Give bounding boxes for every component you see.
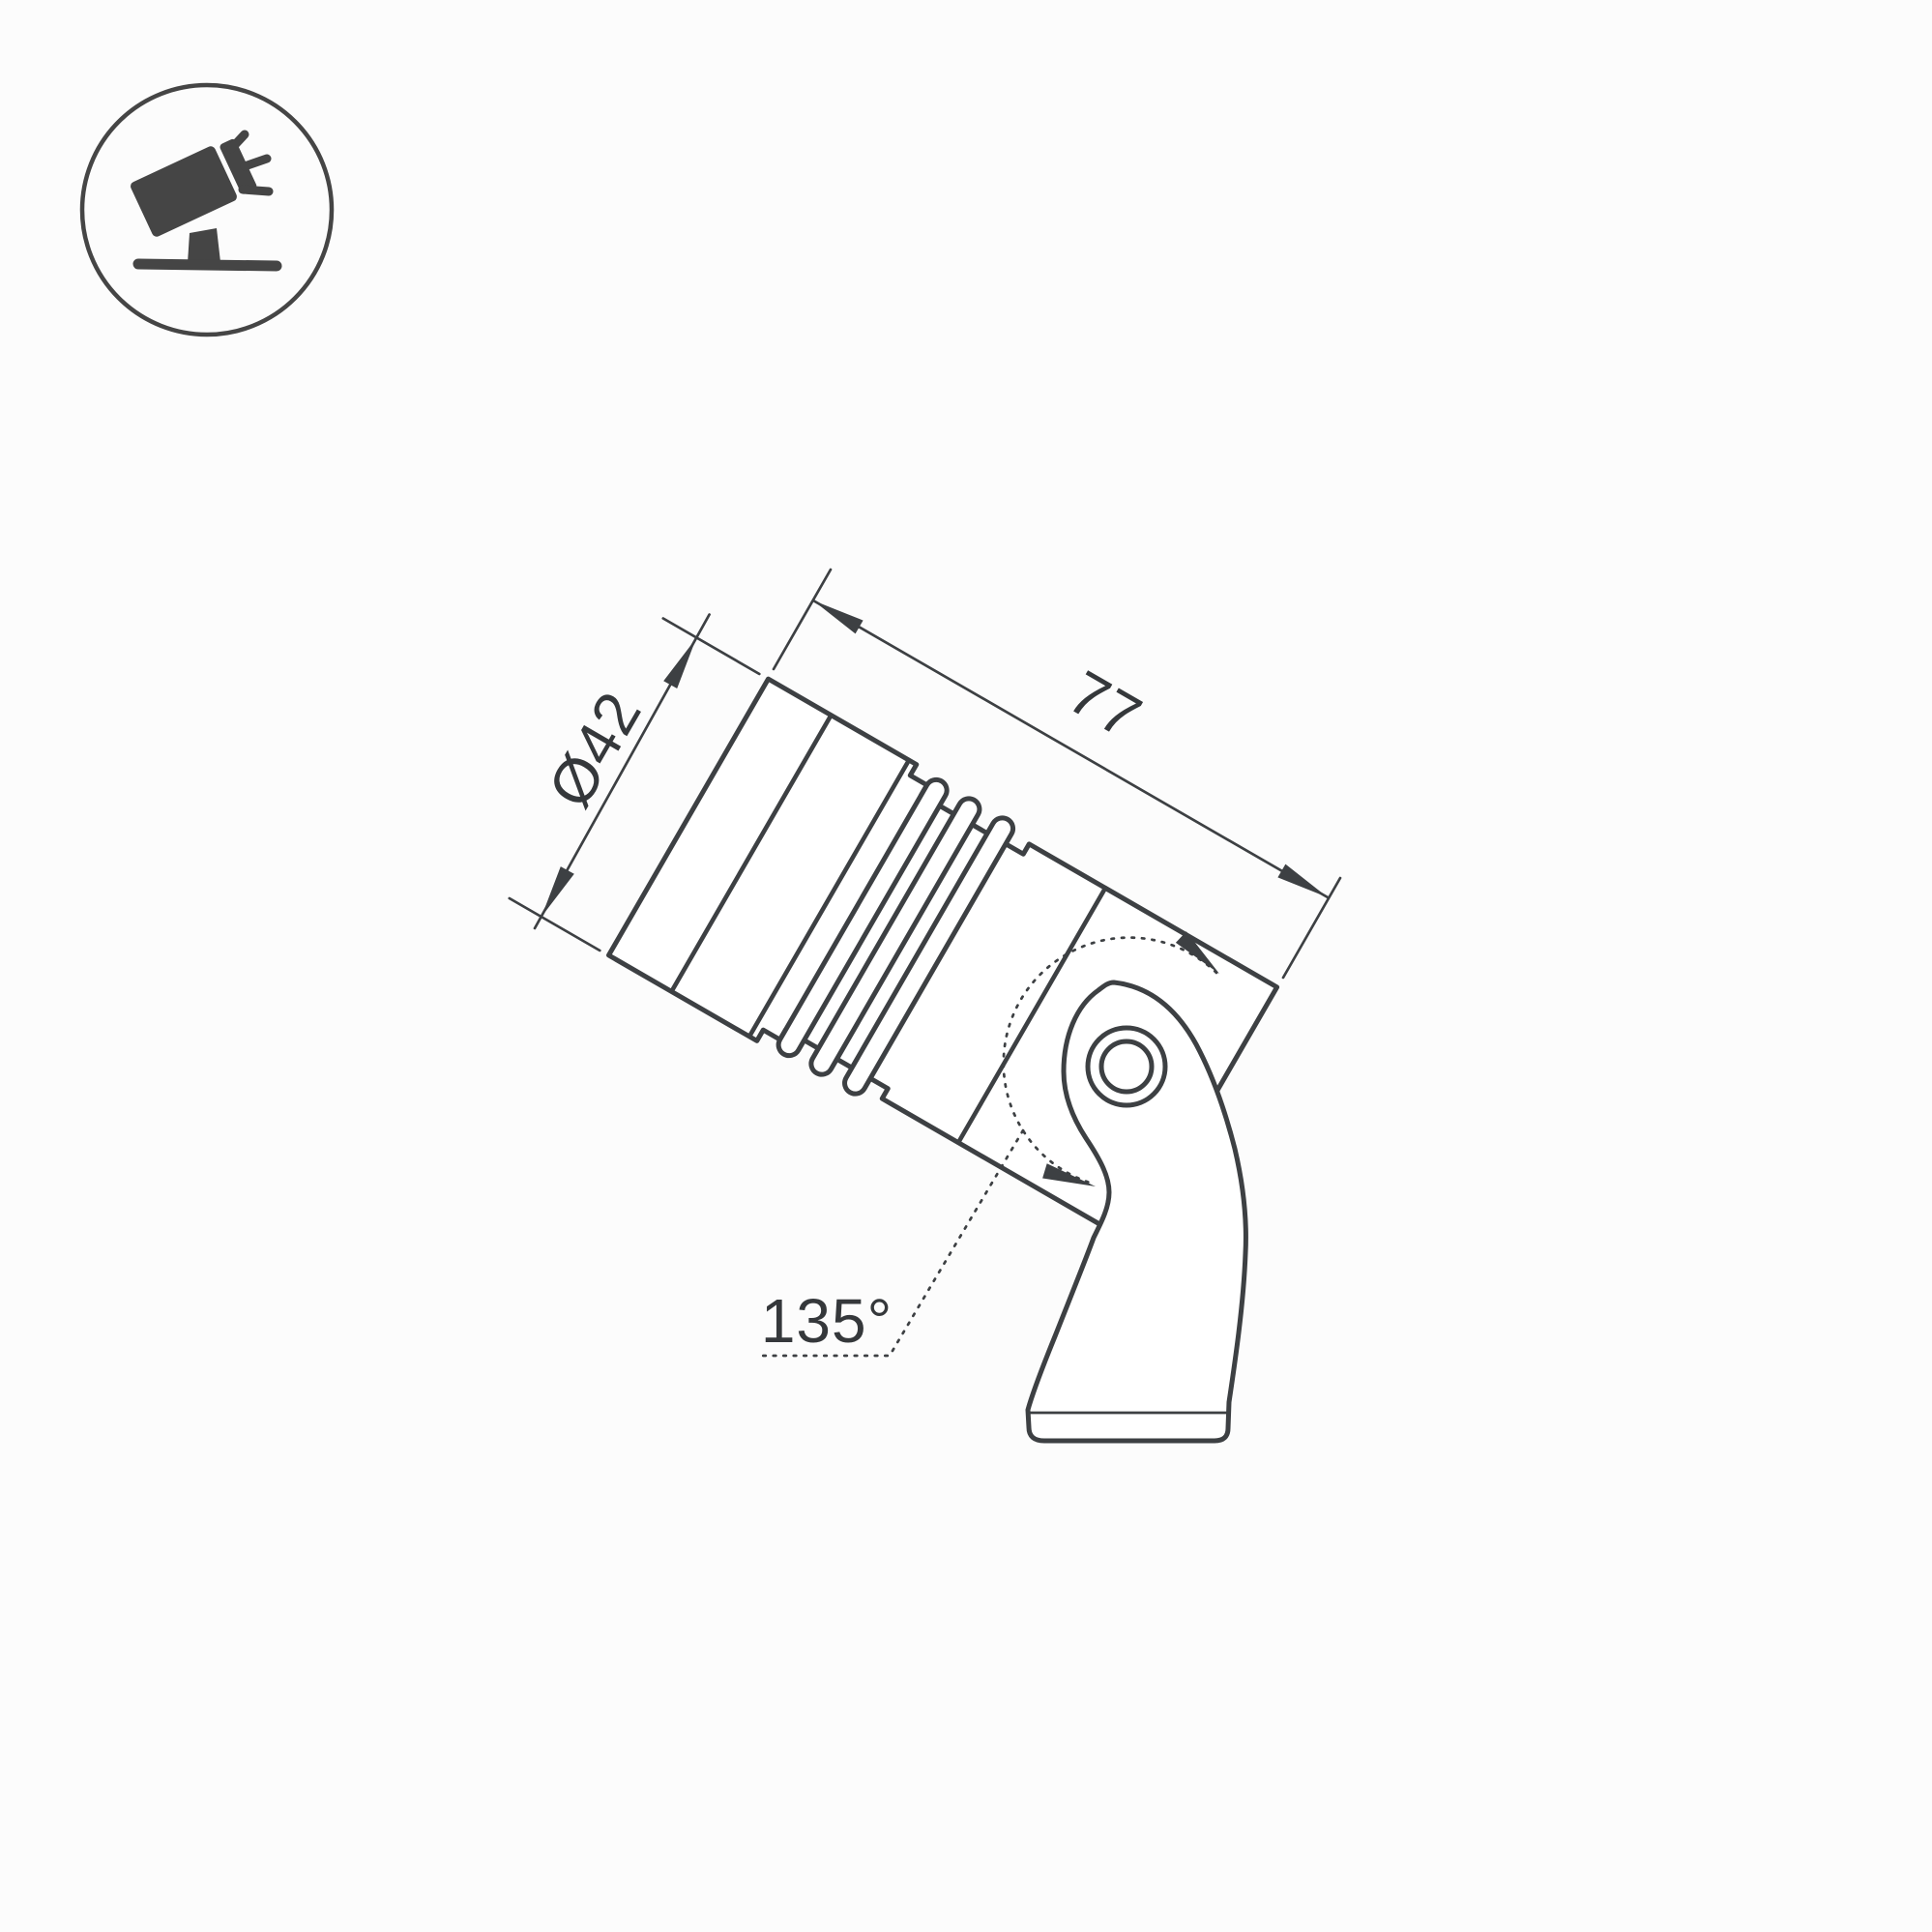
length-label: 77 (1057, 657, 1153, 752)
drawing-page: Ø42 77 135° (0, 0, 1932, 1932)
diameter-label: Ø42 (535, 680, 655, 818)
dimension-arrow (813, 600, 864, 633)
icon-lamp-stem (188, 228, 220, 263)
extension-line (510, 898, 600, 951)
icon-lamp-head (129, 135, 258, 238)
icon-light-ray (245, 159, 267, 166)
angle-label: 135° (761, 1286, 893, 1356)
tilted-spotlight-icon (82, 85, 332, 335)
extension-line (1283, 878, 1340, 978)
extension-line (774, 570, 831, 669)
icon-ground-line (138, 264, 277, 266)
icon-light-ray (231, 134, 245, 149)
technical-drawing: Ø42 77 135° (0, 0, 1932, 1932)
dimension-arrow (542, 866, 574, 917)
dimension-arrow (1277, 864, 1328, 897)
icon-light-ray (243, 190, 269, 191)
pivot-bolt (1101, 1041, 1152, 1092)
dimension-arrow (663, 638, 696, 688)
